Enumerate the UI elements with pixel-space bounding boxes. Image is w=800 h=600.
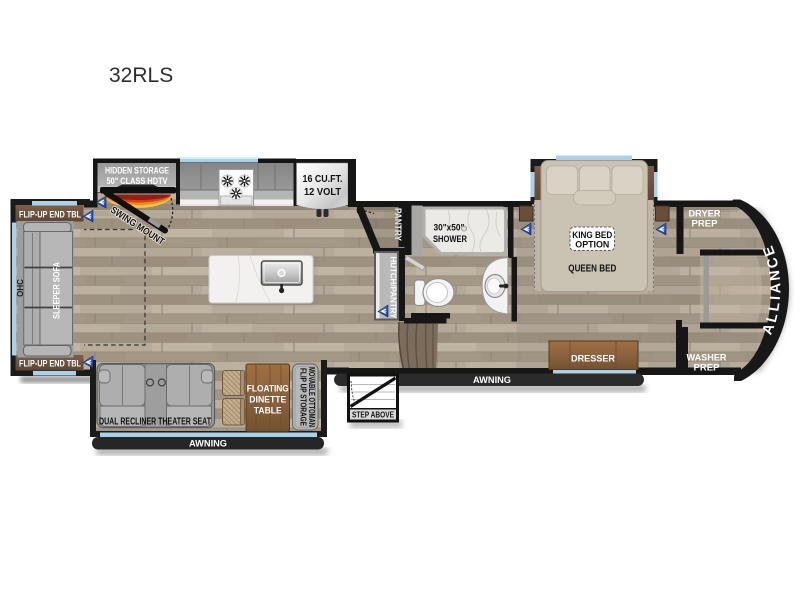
- svg-text:HIDDEN STORAGE: HIDDEN STORAGE: [105, 166, 169, 177]
- svg-text:PREP: PREP: [692, 219, 719, 230]
- svg-text:AWNING: AWNING: [473, 375, 511, 385]
- svg-text:QUEEN BED: QUEEN BED: [568, 264, 616, 275]
- svg-text:FLIP-UP END TBL: FLIP-UP END TBL: [19, 210, 81, 221]
- svg-text:30"x50": 30"x50": [434, 223, 465, 234]
- svg-text:FLOATING: FLOATING: [247, 384, 289, 395]
- svg-text:16 CU.FT.: 16 CU.FT.: [303, 173, 343, 185]
- svg-text:DRESSER: DRESSER: [571, 354, 615, 365]
- svg-text:FLIP UP STORAGE: FLIP UP STORAGE: [299, 368, 309, 426]
- svg-text:SLEEPER SOFA: SLEEPER SOFA: [52, 262, 63, 319]
- svg-text:DUAL RECLINER THEATER SEAT: DUAL RECLINER THEATER SEAT: [99, 417, 211, 428]
- svg-text:PREP: PREP: [694, 363, 721, 374]
- svg-text:AWNING: AWNING: [189, 439, 227, 449]
- svg-text:OPTION: OPTION: [575, 240, 609, 251]
- svg-text:HUTCH/PANTRY: HUTCH/PANTRY: [389, 257, 399, 319]
- svg-text:32RLS: 32RLS: [109, 64, 173, 87]
- svg-text:SHOWER: SHOWER: [433, 234, 467, 245]
- svg-text:12 VOLT: 12 VOLT: [304, 186, 342, 198]
- svg-text:STEP ABOVE: STEP ABOVE: [352, 410, 394, 420]
- svg-text:FLIP-UP END TBL: FLIP-UP END TBL: [19, 359, 81, 370]
- svg-text:DINETTE: DINETTE: [249, 395, 286, 406]
- svg-text:TABLE: TABLE: [254, 406, 282, 417]
- svg-text:OHC: OHC: [16, 279, 25, 297]
